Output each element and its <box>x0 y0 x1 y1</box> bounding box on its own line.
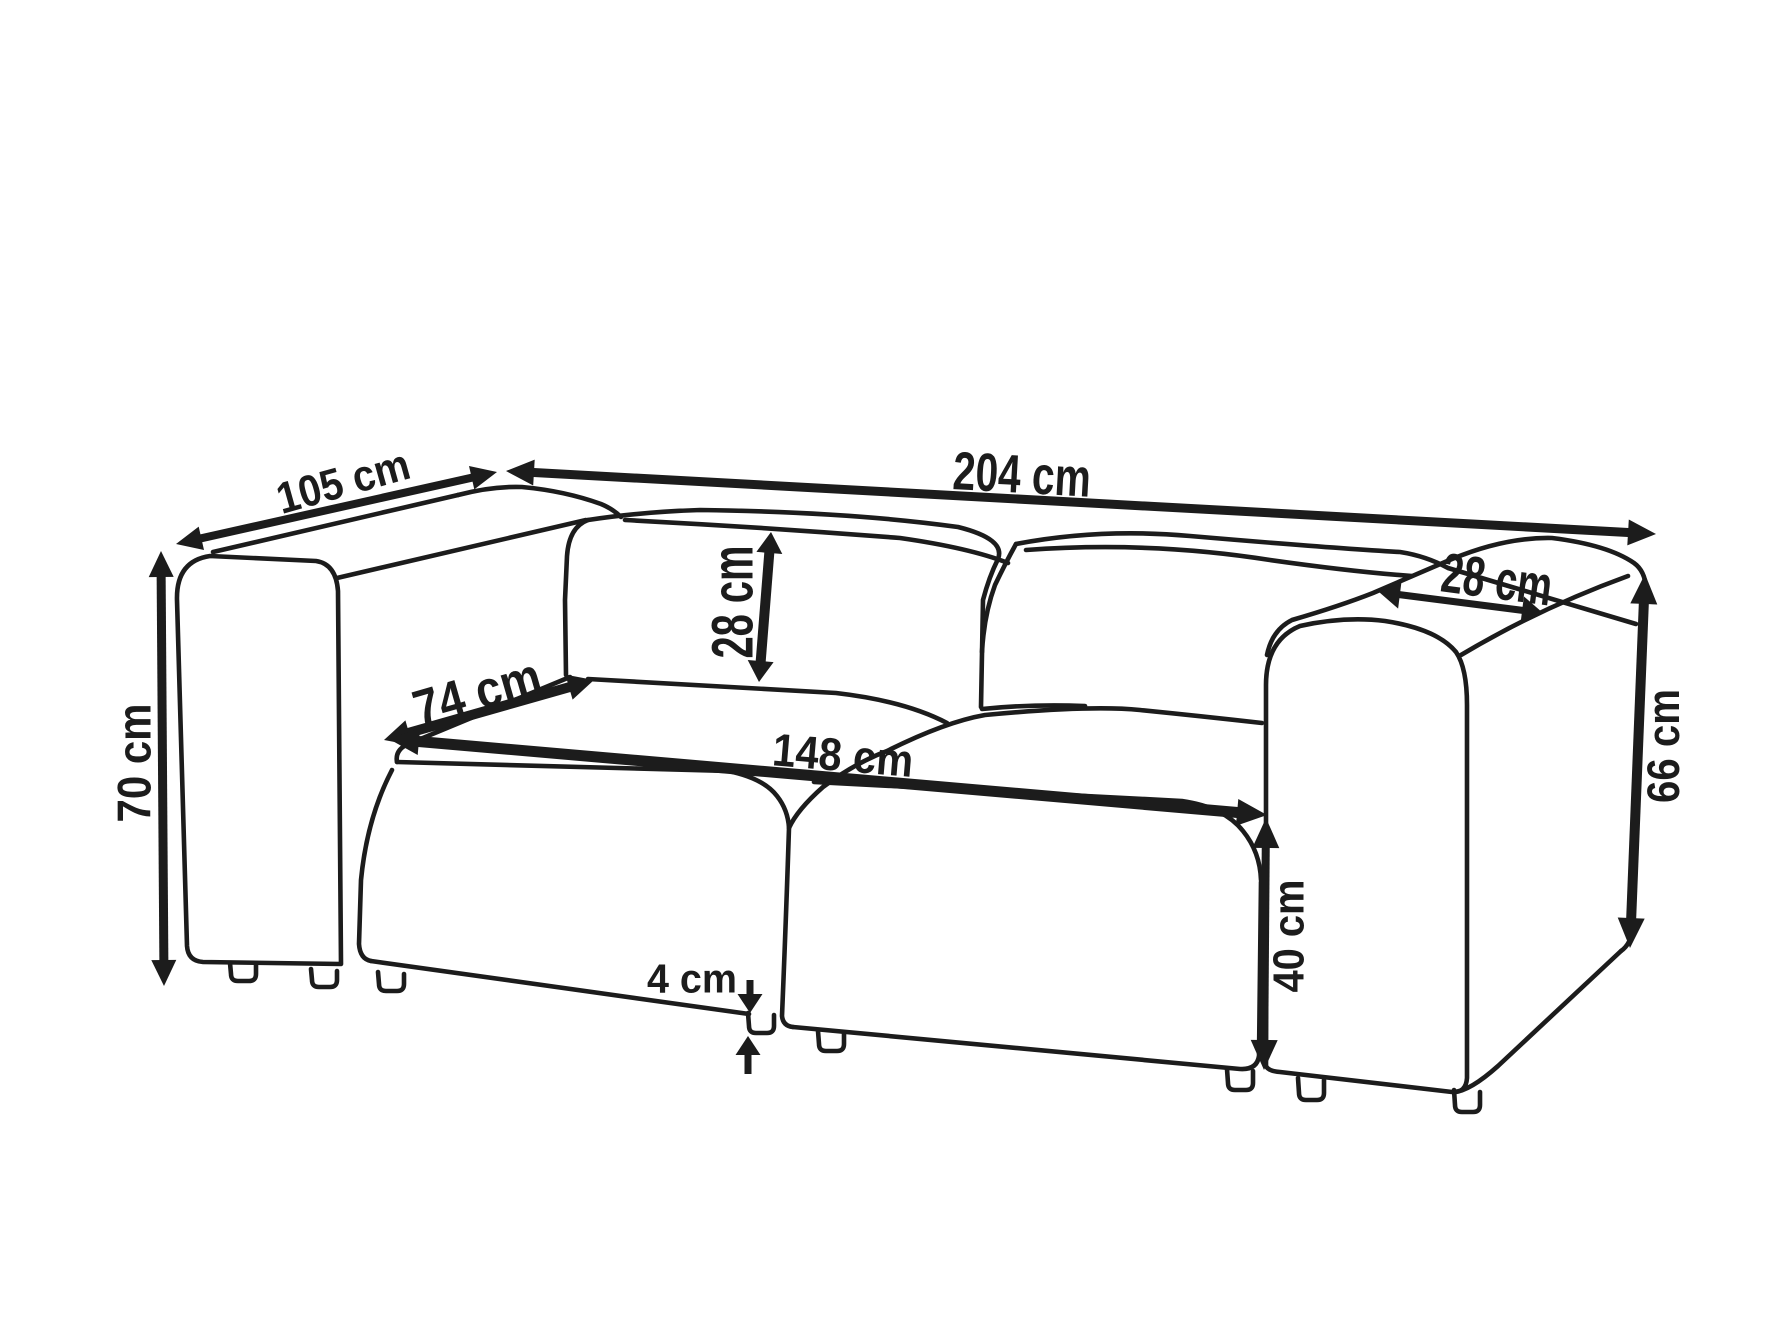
svg-text:40 cm: 40 cm <box>1264 880 1313 993</box>
svg-text:66 cm: 66 cm <box>1638 689 1689 803</box>
svg-text:204 cm: 204 cm <box>951 441 1092 509</box>
svg-text:70 cm: 70 cm <box>107 704 160 823</box>
svg-text:28 cm: 28 cm <box>700 546 765 659</box>
svg-text:4 cm: 4 cm <box>647 955 737 1001</box>
